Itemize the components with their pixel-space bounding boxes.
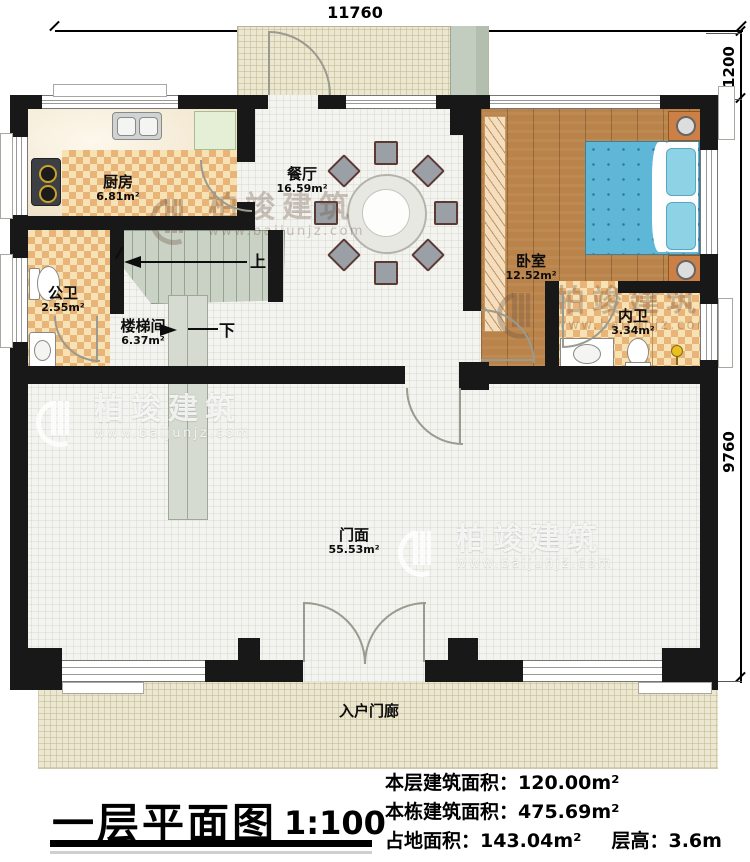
window-sill [0,254,13,348]
stats-block: 本层建筑面积：120.00m² 本栋建筑面积：475.69m² 占地面积：143… [385,769,722,856]
stairs-up-label: 上 [250,248,266,272]
chair [374,261,398,285]
kitchen-stove [31,158,61,206]
wall-segment [700,254,718,304]
room-label-storefront: 门面55.53m² [309,527,399,557]
wall-bath-right [110,230,124,314]
dimension-right-line [740,32,742,683]
wall-segment [461,366,718,384]
stairs-down-line [188,328,218,330]
entry-porch-floor [38,682,718,769]
dimension-top-label: 11760 [315,3,395,22]
wall-segment [178,95,268,109]
porch-step [62,682,144,694]
wall-kitchen-bottom [10,216,255,230]
room-label-kitchen: 厨房6.81m² [73,174,163,204]
bath-sink [29,332,56,368]
wall-corner [10,648,62,690]
porch-step [638,682,712,694]
wall-segment [205,660,303,682]
title-underline-shadow [50,851,372,854]
pillow [666,202,696,250]
window [42,95,178,109]
wall-segment [436,95,490,109]
room-label-entry-porch: 入户门廊 [309,703,429,720]
window-sill [0,133,13,219]
room-label-dining: 餐厅16.59m² [257,166,347,196]
window [700,150,718,254]
room-label-public-bath: 公卫2.55m² [18,285,108,315]
window-sill [718,86,735,140]
extension-line [706,33,742,34]
window-sill [718,298,733,368]
wall-segment [700,360,718,682]
window [700,304,718,360]
balcony-green-strip [450,26,488,95]
floor-plan-page: 11760 1200 9760 [0,0,750,862]
wall-kitchen-right [237,109,255,162]
stairs-up-line [141,261,247,263]
wall-segment [425,660,523,682]
wall-segment [10,342,28,682]
room-label-bedroom: 卧室12.52m² [486,253,576,283]
window [490,95,660,109]
stat-row: 本层建筑面积：120.00m² [385,769,722,798]
wall-segment [318,95,346,109]
wall-bath-divider [545,281,559,370]
wall-segment [10,95,28,137]
pillow [666,148,696,196]
wall-segment [700,95,718,150]
nightstand [668,111,702,141]
window-sill [53,84,167,97]
chair [374,141,398,165]
stairs-up-arrow [124,256,141,268]
window [346,95,436,109]
wall-stair-stub [268,230,283,302]
dining-table-top [362,189,410,237]
stairs-down-label: 下 [219,317,235,341]
window [62,660,205,682]
title-underline [50,840,372,847]
wardrobe [484,116,506,332]
stat-row: 本栋建筑面积：475.69m² [385,798,722,827]
wall-segment [10,366,405,384]
stat-row: 占地面积：143.04m²层高：3.6m [385,827,722,856]
kitchen-appliance [194,111,236,150]
chair [434,201,458,225]
wall-dining-bedroom [463,109,481,311]
wall-pier [238,638,260,662]
chair [314,201,338,225]
stairwell-arrow [160,324,177,336]
wall-pier [448,638,478,662]
drawing-scale: 1:100 [284,804,386,842]
wall-column [459,362,489,390]
floor-lamp [671,345,683,357]
dimension-right-lower-label: 9760 [720,422,738,482]
kitchen-sink [112,112,162,140]
room-label-private-bath: 内卫3.34m² [588,308,678,338]
window [523,660,662,682]
wall-bath-top [618,281,700,293]
